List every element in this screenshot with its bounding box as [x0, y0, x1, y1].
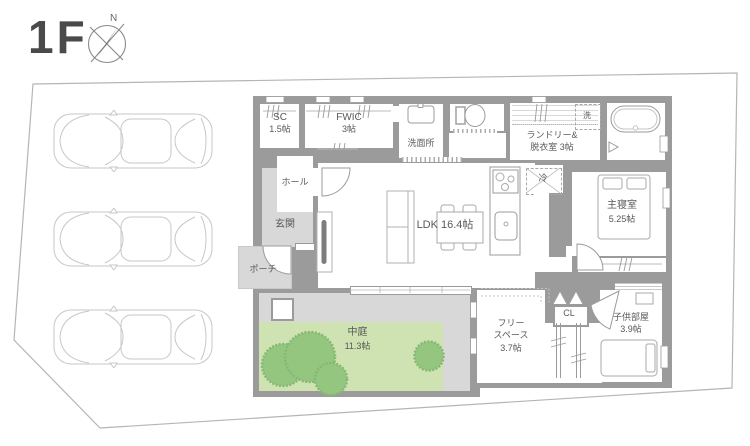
- corridor-to-bedroom: [535, 193, 549, 259]
- label-hall: ホール: [276, 177, 314, 187]
- label-laundry-1: ランドリー&: [514, 130, 590, 140]
- car-outline: [54, 306, 212, 368]
- corridor-elbow: [535, 257, 566, 272]
- label-laundry-2: 脱衣室 3帖: [514, 142, 590, 152]
- label-porch: ポーチ: [238, 264, 288, 274]
- label-fwic: FWIC: [305, 112, 393, 124]
- car-outline: [54, 110, 212, 172]
- floor-plan-page: 1F N SC 1.5帖 FWIC 3帖 洗面所 ランドリー& 脱衣室 3帖 洗…: [0, 0, 750, 446]
- compass-needle: [97, 28, 117, 57]
- label-kids-size: 3.9帖: [602, 324, 660, 334]
- outdoor-fixture: [271, 298, 294, 321]
- toilet-vestibule: [449, 133, 506, 158]
- label-freespace-1: フリー: [483, 318, 539, 328]
- kids-closet-band: [615, 283, 662, 292]
- label-cl: CL: [553, 308, 585, 318]
- label-freespace-size: 3.7帖: [483, 343, 539, 353]
- room-bath: [607, 103, 665, 160]
- car-outline: [54, 208, 212, 270]
- label-ldk: LDK 16.4帖: [400, 219, 490, 232]
- master-closet: [578, 258, 666, 272]
- label-master-size: 5.25帖: [598, 214, 646, 224]
- room-kids: [600, 290, 662, 382]
- label-sc-size: 1.5帖: [258, 124, 302, 134]
- label-sc: SC: [258, 112, 302, 124]
- floor-label: 1F: [28, 10, 88, 64]
- label-fwic-size: 3帖: [305, 124, 393, 134]
- label-entrance: 玄関: [263, 219, 307, 231]
- label-courtyard-size: 11.3帖: [330, 341, 385, 351]
- washroom-sliding-door: [402, 157, 462, 162]
- entrance-sidelight-window: [295, 243, 315, 251]
- label-kids: 子供部屋: [602, 312, 660, 322]
- label-freespace-2: スペース: [483, 330, 539, 340]
- label-courtyard: 中庭: [330, 327, 385, 339]
- partition-zone: [545, 323, 602, 383]
- label-washroom: 洗面所: [396, 138, 446, 148]
- compass-icon: [89, 24, 126, 63]
- label-washer: 洗: [575, 111, 599, 120]
- north-label: N: [110, 13, 117, 24]
- label-master: 主寝室: [598, 200, 646, 212]
- label-fridge: 冷: [526, 173, 560, 183]
- toilet-sliding-door: [453, 129, 497, 133]
- room-washroom: [399, 104, 443, 158]
- ldk-south-window: [350, 286, 472, 295]
